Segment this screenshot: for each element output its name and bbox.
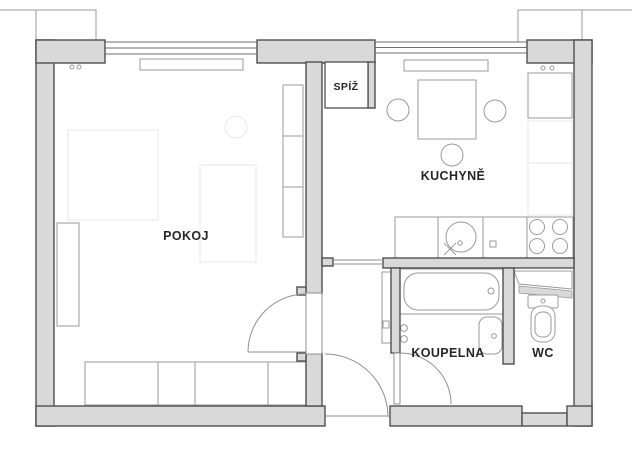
- floor-plan-canvas: POKOJ SPÍŽ KUCHYNĚ KOUPELNA WC: [0, 0, 632, 468]
- floor-plan: POKOJ SPÍŽ KUCHYNĚ KOUPELNA WC: [0, 0, 632, 468]
- room-label-spiz: SPÍŽ: [334, 80, 359, 93]
- outer-wall-bottom-corner: [567, 406, 592, 426]
- partition-pokoj-hall: [306, 353, 322, 406]
- wardrobe: [85, 362, 307, 405]
- radiator-kitchen: [404, 60, 488, 71]
- passage-jamb: [322, 258, 333, 266]
- hinge-dot-icon: [541, 66, 545, 70]
- kitchen-counter: [395, 217, 573, 258]
- outer-wall-bottom-b: [390, 406, 522, 426]
- hinge-dot-icon: [550, 66, 554, 70]
- room-label-koupelna: KOUPELNA: [411, 346, 484, 360]
- valve-icon: [401, 336, 408, 343]
- chair: [441, 144, 463, 166]
- door-frame-pokoj: [306, 293, 322, 354]
- room-label-wc: WC: [532, 346, 554, 360]
- dining-table: [418, 80, 476, 139]
- outer-wall-bottom-notch: [522, 413, 567, 426]
- door-swing-pokoj: [248, 294, 306, 352]
- outer-wall-bottom-a: [36, 406, 325, 426]
- door-swing-entrance: [325, 354, 388, 417]
- valve-icon: [401, 325, 408, 332]
- door-leaf-bathroom: [394, 353, 400, 404]
- faint-counter-right: [528, 121, 572, 215]
- faint-bed-outline: [68, 130, 158, 220]
- door-jamb-bottom: [297, 353, 306, 361]
- switch-dot-icon: [77, 65, 81, 69]
- chair: [484, 100, 506, 122]
- chair: [387, 99, 409, 121]
- faint-furniture-outline: [200, 165, 256, 262]
- shelf-unit-left: [57, 223, 79, 326]
- outer-wall-left: [36, 40, 54, 426]
- outer-wall-top-b: [257, 40, 375, 63]
- partition-bath-wc: [503, 268, 514, 364]
- partition-pokoj-kitchen: [306, 62, 322, 294]
- room-label-kuchyne: KUCHYNĚ: [421, 168, 486, 183]
- radiator-pokoj: [140, 59, 243, 70]
- partition-kitchen-bath: [383, 258, 574, 268]
- fridge: [528, 73, 572, 118]
- door-swing-bathroom: [400, 353, 451, 404]
- outer-wall-top-a: [36, 40, 105, 63]
- room-label-pokoj: POKOJ: [163, 229, 209, 243]
- neighbor-wall-outline-right: [518, 10, 632, 42]
- hall-cabinet: [382, 272, 391, 343]
- partition-spiz-right: [368, 62, 375, 108]
- outer-wall-right: [574, 40, 592, 426]
- partition-bath-hall: [391, 268, 400, 353]
- faint-table-outline: [225, 116, 247, 138]
- switch-dot-icon: [70, 65, 74, 69]
- shelf-unit-right: [283, 85, 303, 237]
- neighbor-wall-outline-left: [0, 10, 96, 40]
